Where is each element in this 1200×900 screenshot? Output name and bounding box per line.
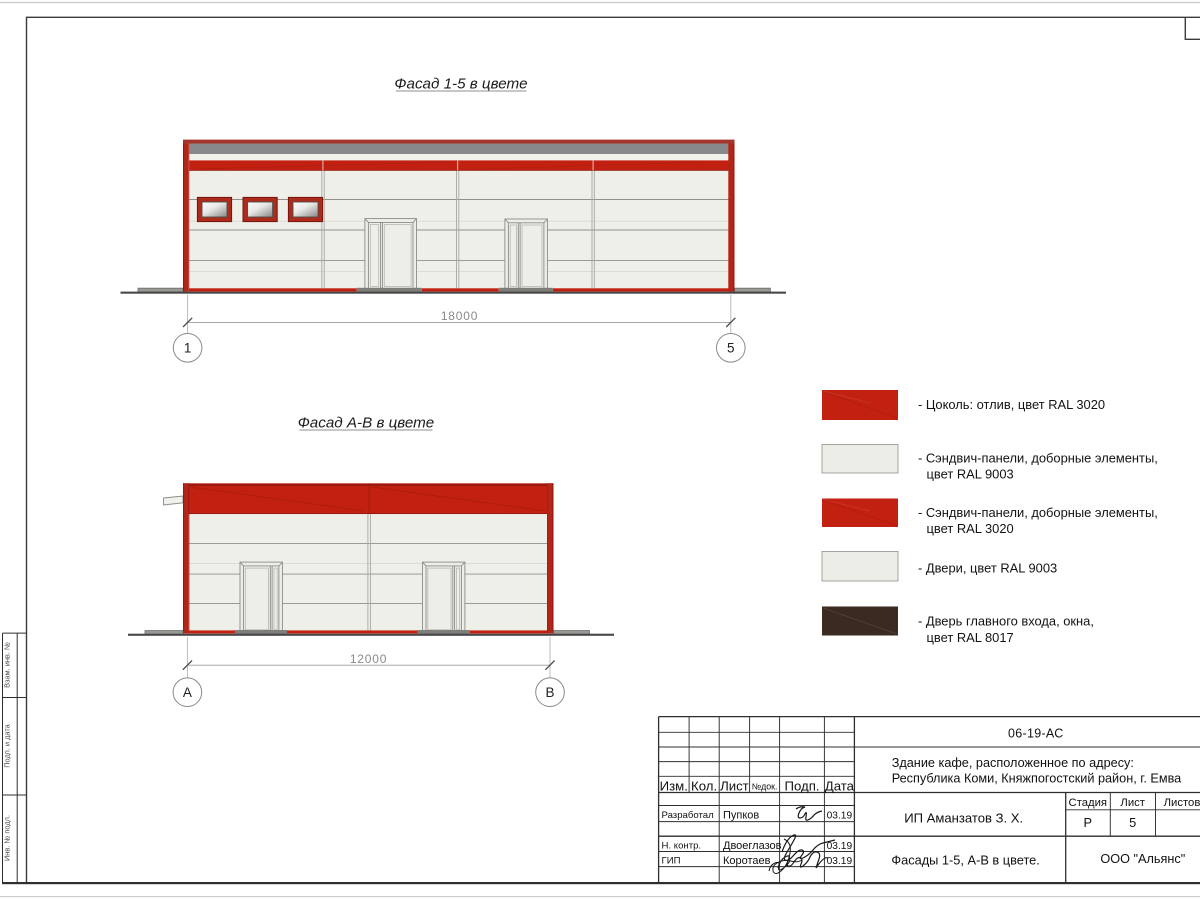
svg-text:цвет RAL 3020: цвет RAL 3020 xyxy=(927,521,1014,536)
svg-text:Р: Р xyxy=(1084,815,1093,830)
svg-text:А: А xyxy=(183,685,192,700)
svg-text:цвет RAL 8017: цвет RAL 8017 xyxy=(927,630,1014,645)
svg-text:03.19: 03.19 xyxy=(827,856,853,867)
svg-text:12000: 12000 xyxy=(350,652,387,666)
svg-text:ИП Аманзатов З. Х.: ИП Аманзатов З. Х. xyxy=(904,811,1023,826)
svg-text:5: 5 xyxy=(727,341,735,356)
svg-text:Здание кафе, расположенное по: Здание кафе, расположенное по адресу: xyxy=(892,756,1134,770)
svg-text:Фасад А-В в цвете: Фасад А-В в цвете xyxy=(298,414,435,431)
svg-text:- Двери, цвет RAL 9003: - Двери, цвет RAL 9003 xyxy=(918,561,1057,576)
svg-text:- Дверь главного входа, окна,: - Дверь главного входа, окна, xyxy=(918,614,1094,629)
svg-text:06-19-АС: 06-19-АС xyxy=(1008,726,1064,740)
svg-text:Фасад 1-5 в цвете: Фасад 1-5 в цвете xyxy=(394,76,527,93)
svg-text:- Сэндвич-панели, доборные эле: - Сэндвич-панели, доборные элементы, xyxy=(918,451,1158,466)
svg-text:- Цоколь: отлив, цвет RAL 3020: - Цоколь: отлив, цвет RAL 3020 xyxy=(918,397,1105,412)
svg-text:Разработал: Разработал xyxy=(662,810,714,821)
svg-text:Стадия: Стадия xyxy=(1069,797,1108,809)
svg-text:ГИП: ГИП xyxy=(662,856,681,867)
svg-text:Взам. инв. №: Взам. инв. № xyxy=(3,642,12,688)
svg-text:ООО "Альянс": ООО "Альянс" xyxy=(1100,852,1185,866)
svg-text:цвет RAL 9003: цвет RAL 9003 xyxy=(927,467,1014,482)
svg-text:1: 1 xyxy=(184,341,192,356)
svg-text:18000: 18000 xyxy=(441,309,478,323)
svg-text:Лист: Лист xyxy=(1120,797,1145,809)
svg-text:В: В xyxy=(545,685,554,700)
svg-text:№док.: №док. xyxy=(752,781,778,791)
svg-text:Подп.: Подп. xyxy=(784,778,819,793)
svg-text:Инв. № подл.: Инв. № подл. xyxy=(3,815,12,861)
svg-text:Пупков: Пупков xyxy=(723,809,759,821)
svg-text:Двоеглазов: Двоеглазов xyxy=(723,840,782,852)
svg-text:Коротаев: Коротаев xyxy=(723,855,771,867)
svg-text:Листов: Листов xyxy=(1164,797,1200,809)
svg-text:Дата: Дата xyxy=(825,778,855,793)
svg-text:Изм.: Изм. xyxy=(660,778,688,793)
svg-text:Подп. и дата: Подп. и дата xyxy=(3,723,12,767)
svg-text:Фасады 1-5, А-В в цвете.: Фасады 1-5, А-В в цвете. xyxy=(891,853,1040,868)
svg-text:Лист: Лист xyxy=(720,778,749,793)
svg-text:- Сэндвич-панели, доборные эле: - Сэндвич-панели, доборные элементы, xyxy=(918,505,1158,520)
svg-text:5: 5 xyxy=(1129,815,1136,830)
svg-text:Кол.: Кол. xyxy=(691,778,717,793)
svg-text:03.19: 03.19 xyxy=(827,810,853,821)
svg-text:Республика Коми, Княжпогостски: Республика Коми, Княжпогостский район, г… xyxy=(892,771,1182,785)
svg-text:03.19: 03.19 xyxy=(827,841,853,852)
svg-text:Н. контр.: Н. контр. xyxy=(662,841,702,852)
